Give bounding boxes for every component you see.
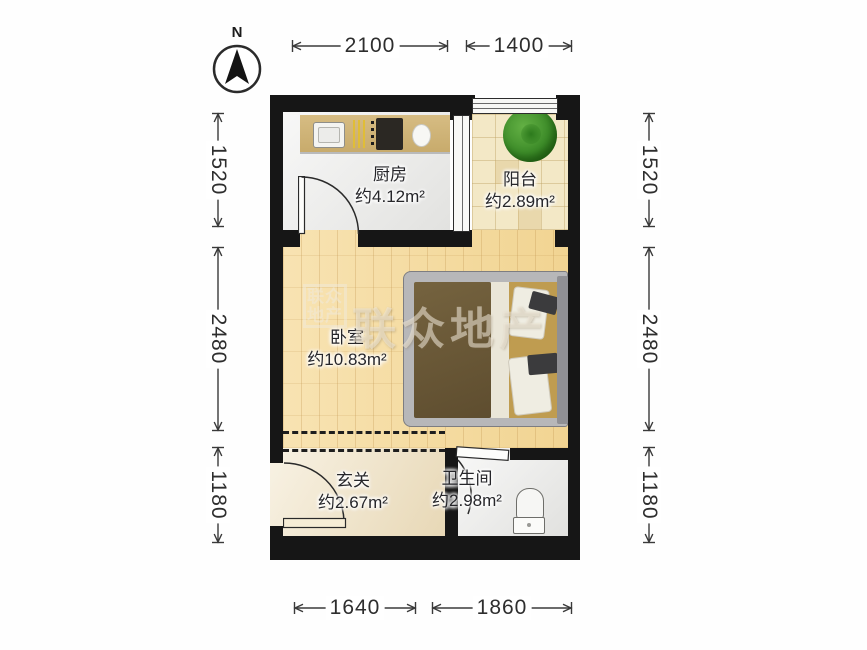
plate-icon <box>412 124 431 147</box>
room-name: 玄关 <box>318 470 388 492</box>
floorplan-page: N 2100 1400 1640 1860 1520 2480 1180 152 <box>0 0 867 650</box>
dimension-left-1: 1520 <box>211 112 225 228</box>
room-name: 厨房 <box>355 164 425 186</box>
kitchen-window <box>453 115 470 232</box>
dimension-right-1: 1520 <box>642 112 656 228</box>
wall <box>510 448 568 460</box>
room-name: 卫生间 <box>432 468 502 490</box>
dimension-bottom-right: 1860 <box>431 601 573 615</box>
room-name: 卧室 <box>307 327 386 349</box>
stove-icon <box>376 118 403 150</box>
dimension-value: 1640 <box>326 596 385 620</box>
dimension-value: 1180 <box>206 466 230 523</box>
room-label-bedroom: 卧室 约10.83m² <box>307 327 386 371</box>
dimension-value: 1400 <box>490 34 549 58</box>
north-arrow: N <box>208 24 266 100</box>
area-boundary-dashed <box>283 431 445 434</box>
north-label: N <box>208 24 266 41</box>
room-label-kitchen: 厨房 约4.12m² <box>355 164 425 208</box>
dimension-right-2: 2480 <box>642 246 656 432</box>
room-area: 约10.83m² <box>307 349 386 371</box>
dimension-value: 1520 <box>637 141 661 200</box>
wall <box>270 95 475 112</box>
dimension-top-left: 2100 <box>291 39 449 53</box>
wall <box>568 95 580 560</box>
toilet-icon <box>513 488 545 536</box>
room-name: 阳台 <box>485 169 555 191</box>
wall <box>270 95 283 463</box>
dimension-value: 1860 <box>473 596 532 620</box>
kitchen-counter <box>300 115 450 152</box>
bed <box>403 271 568 427</box>
utensils-icon <box>353 120 365 148</box>
compass-icon <box>209 43 265 95</box>
cushion <box>527 353 559 376</box>
room-area: 约2.89m² <box>485 191 555 213</box>
dimension-value: 1180 <box>637 466 661 523</box>
dimension-bottom-left: 1640 <box>293 601 417 615</box>
dimension-value: 1520 <box>206 141 230 200</box>
dimension-left-3: 1180 <box>211 446 225 544</box>
room-label-balcony: 阳台 约2.89m² <box>485 169 555 213</box>
room-area: 约2.67m² <box>318 492 388 514</box>
room-label-bathroom: 卫生间 约2.98m² <box>432 468 502 512</box>
area-boundary-dashed <box>283 449 445 452</box>
wall <box>270 230 300 247</box>
dimension-top-right: 1400 <box>465 39 573 53</box>
dimension-value: 2480 <box>206 310 230 369</box>
room-label-entry: 玄关 约2.67m² <box>318 470 388 514</box>
room-area: 约4.12m² <box>355 186 425 208</box>
room-area: 约2.98m² <box>432 490 502 512</box>
kitchen-door <box>298 176 362 238</box>
wall <box>555 230 568 247</box>
dimension-right-3: 1180 <box>642 446 656 544</box>
floorplan: 厨房 约4.12m² 阳台 约2.89m² 卧室 约10.83m² 玄关 约2.… <box>270 95 580 560</box>
dimension-value: 2100 <box>341 34 400 58</box>
bed-blanket <box>414 282 491 418</box>
wall <box>358 230 472 247</box>
bed-sheet <box>491 282 509 418</box>
plant-icon <box>503 108 557 162</box>
balcony-window <box>472 98 558 114</box>
sink-icon <box>313 122 345 148</box>
bed-headboard <box>557 276 568 424</box>
dimension-left-2: 2480 <box>211 246 225 432</box>
wall <box>270 536 580 560</box>
dimension-value: 2480 <box>637 310 661 369</box>
